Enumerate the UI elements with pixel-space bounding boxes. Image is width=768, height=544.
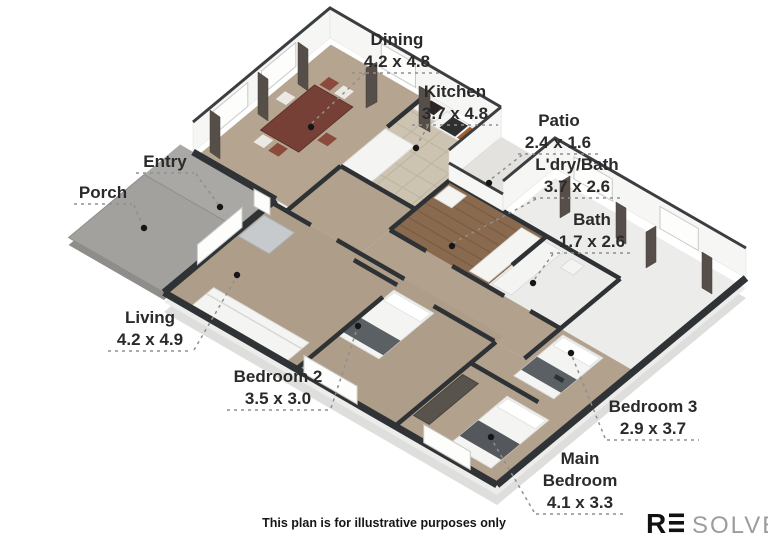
label-bath-dims: 1.7 x 2.6 [559, 232, 625, 251]
label-bath-name: Bath [573, 210, 611, 229]
label-kitchen-name: Kitchen [424, 82, 486, 101]
label-dining-name: Dining [371, 30, 424, 49]
curtain [702, 252, 712, 294]
curtain [258, 72, 268, 121]
label-bedroom3-dims: 2.9 x 3.7 [620, 419, 686, 438]
label-living-name: Living [125, 308, 175, 327]
label-ldry-name: L'dry/Bath [535, 155, 618, 174]
label-main-line1: Main [561, 449, 600, 468]
label-living-dims: 4.2 x 4.9 [117, 330, 183, 349]
logo-letter-r: R [646, 508, 666, 539]
label-bedroom3-name: Bedroom 3 [609, 397, 698, 416]
label-entry: Entry [143, 152, 187, 171]
label-main-dims: 4.1 x 3.3 [547, 493, 613, 512]
logo-e-bars [669, 514, 684, 533]
label-porch: Porch [79, 183, 127, 202]
label-kitchen-dims: 3.7 x 4.8 [422, 104, 488, 123]
disclaimer-text: This plan is for illustrative purposes o… [262, 516, 506, 530]
label-main-line2: Bedroom [543, 471, 618, 490]
logo-solve-text: SOLVE [692, 512, 768, 539]
resolve-logo: R SOLVE [646, 508, 768, 539]
label-bedroom2-dims: 3.5 x 3.0 [245, 389, 311, 408]
floorplan-svg: Dining 4.2 x 4.8 Kitchen 3.7 x 4.8 Patio… [0, 0, 768, 544]
label-dining-dims: 4.2 x 4.8 [364, 52, 430, 71]
label-bedroom2-name: Bedroom 2 [234, 367, 323, 386]
label-patio-name: Patio [538, 111, 580, 130]
label-patio-dims: 2.4 x 1.6 [525, 133, 591, 152]
curtain [298, 42, 308, 91]
curtain [646, 226, 656, 268]
floorplan-page: Dining 4.2 x 4.8 Kitchen 3.7 x 4.8 Patio… [0, 0, 768, 544]
label-ldry-dims: 3.7 x 2.6 [544, 177, 610, 196]
curtain [210, 110, 220, 159]
